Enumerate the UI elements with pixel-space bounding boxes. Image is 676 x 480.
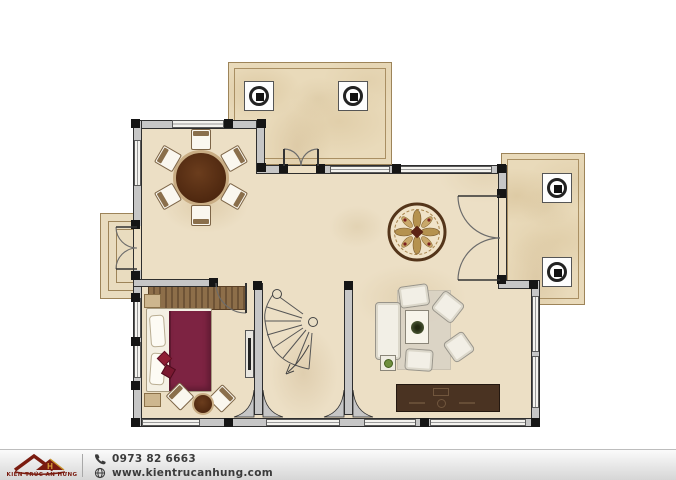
logo-letter: H	[47, 462, 53, 471]
wall-post	[131, 220, 140, 229]
wall-post	[131, 271, 140, 280]
lounge-chair	[404, 348, 433, 372]
website-row: www.kientrucanhung.com	[94, 466, 273, 479]
window	[142, 419, 200, 426]
wall-post	[131, 119, 140, 128]
wall-post	[420, 418, 429, 427]
window	[430, 419, 526, 426]
door-opening-entry	[283, 166, 319, 173]
window	[330, 166, 390, 173]
wall-post	[497, 275, 506, 284]
wall-post	[279, 164, 288, 173]
phone-number: 0973 82 6663	[112, 453, 196, 465]
pillow	[149, 315, 166, 348]
tv-sketch	[433, 388, 449, 396]
tv-sketch-mark	[459, 402, 475, 404]
side-table	[380, 355, 396, 371]
wall-post	[531, 418, 540, 427]
table-plant	[411, 321, 424, 334]
wall-bedroom-divider	[133, 279, 217, 287]
dining-chair	[191, 129, 211, 150]
nightstand	[144, 294, 161, 308]
column	[542, 173, 572, 203]
wall-post	[497, 164, 506, 173]
wall-post	[131, 418, 140, 427]
wall-post	[131, 293, 140, 302]
wall-post	[131, 381, 140, 390]
wall-post	[257, 119, 266, 128]
window	[532, 356, 539, 408]
armchair	[398, 283, 431, 309]
wall-post	[209, 278, 218, 287]
tv-sketch-mark	[409, 402, 425, 404]
wall-post	[529, 280, 538, 289]
wall-post	[316, 164, 325, 173]
phone-row: 0973 82 6663	[94, 452, 273, 465]
window	[172, 120, 224, 128]
floorplan-canvas: H KIẾN TRÚC AN HƯNG 0973 82 6663 www	[0, 0, 676, 480]
wall-post	[224, 418, 233, 427]
window	[134, 342, 141, 378]
wall-post	[253, 281, 262, 290]
footer-divider	[82, 454, 83, 477]
globe-icon	[94, 467, 106, 479]
wall-post	[131, 337, 140, 346]
understair-niche-door	[248, 338, 251, 370]
window	[532, 296, 539, 352]
bed-duvet	[169, 311, 211, 391]
window	[400, 166, 492, 173]
door-opening-side	[134, 226, 141, 270]
wall-post	[392, 164, 401, 173]
side-table-plant	[384, 359, 393, 368]
door-opening-terrace	[499, 196, 506, 280]
wall-post	[344, 281, 353, 290]
dining-chair	[191, 205, 211, 226]
bed	[146, 308, 212, 392]
nightstand	[144, 393, 161, 407]
window	[266, 419, 340, 426]
wall-stair-left	[254, 283, 263, 415]
footer-contact: 0973 82 6663 www.kientrucanhung.com	[94, 452, 273, 479]
bedroom-coffee-table	[192, 393, 214, 415]
window	[134, 140, 141, 186]
column	[244, 81, 274, 111]
column	[542, 257, 572, 287]
website-url: www.kientrucanhung.com	[112, 467, 273, 479]
wardrobe	[148, 286, 246, 310]
footer-bar: H KIẾN TRÚC AN HƯNG 0973 82 6663 www	[0, 449, 676, 480]
phone-icon	[94, 453, 106, 465]
column	[338, 81, 368, 111]
tv-sketch-dial	[437, 399, 446, 408]
wall-post	[257, 163, 266, 172]
wall-post	[224, 119, 233, 128]
sofa	[375, 302, 401, 360]
coffee-table	[405, 310, 429, 344]
tv-cabinet	[396, 384, 500, 412]
brand-name: KIẾN TRÚC AN HƯNG	[6, 472, 78, 478]
window	[364, 419, 416, 426]
wall-stair-right	[344, 283, 353, 415]
wall-post	[497, 189, 506, 198]
window	[134, 298, 141, 338]
